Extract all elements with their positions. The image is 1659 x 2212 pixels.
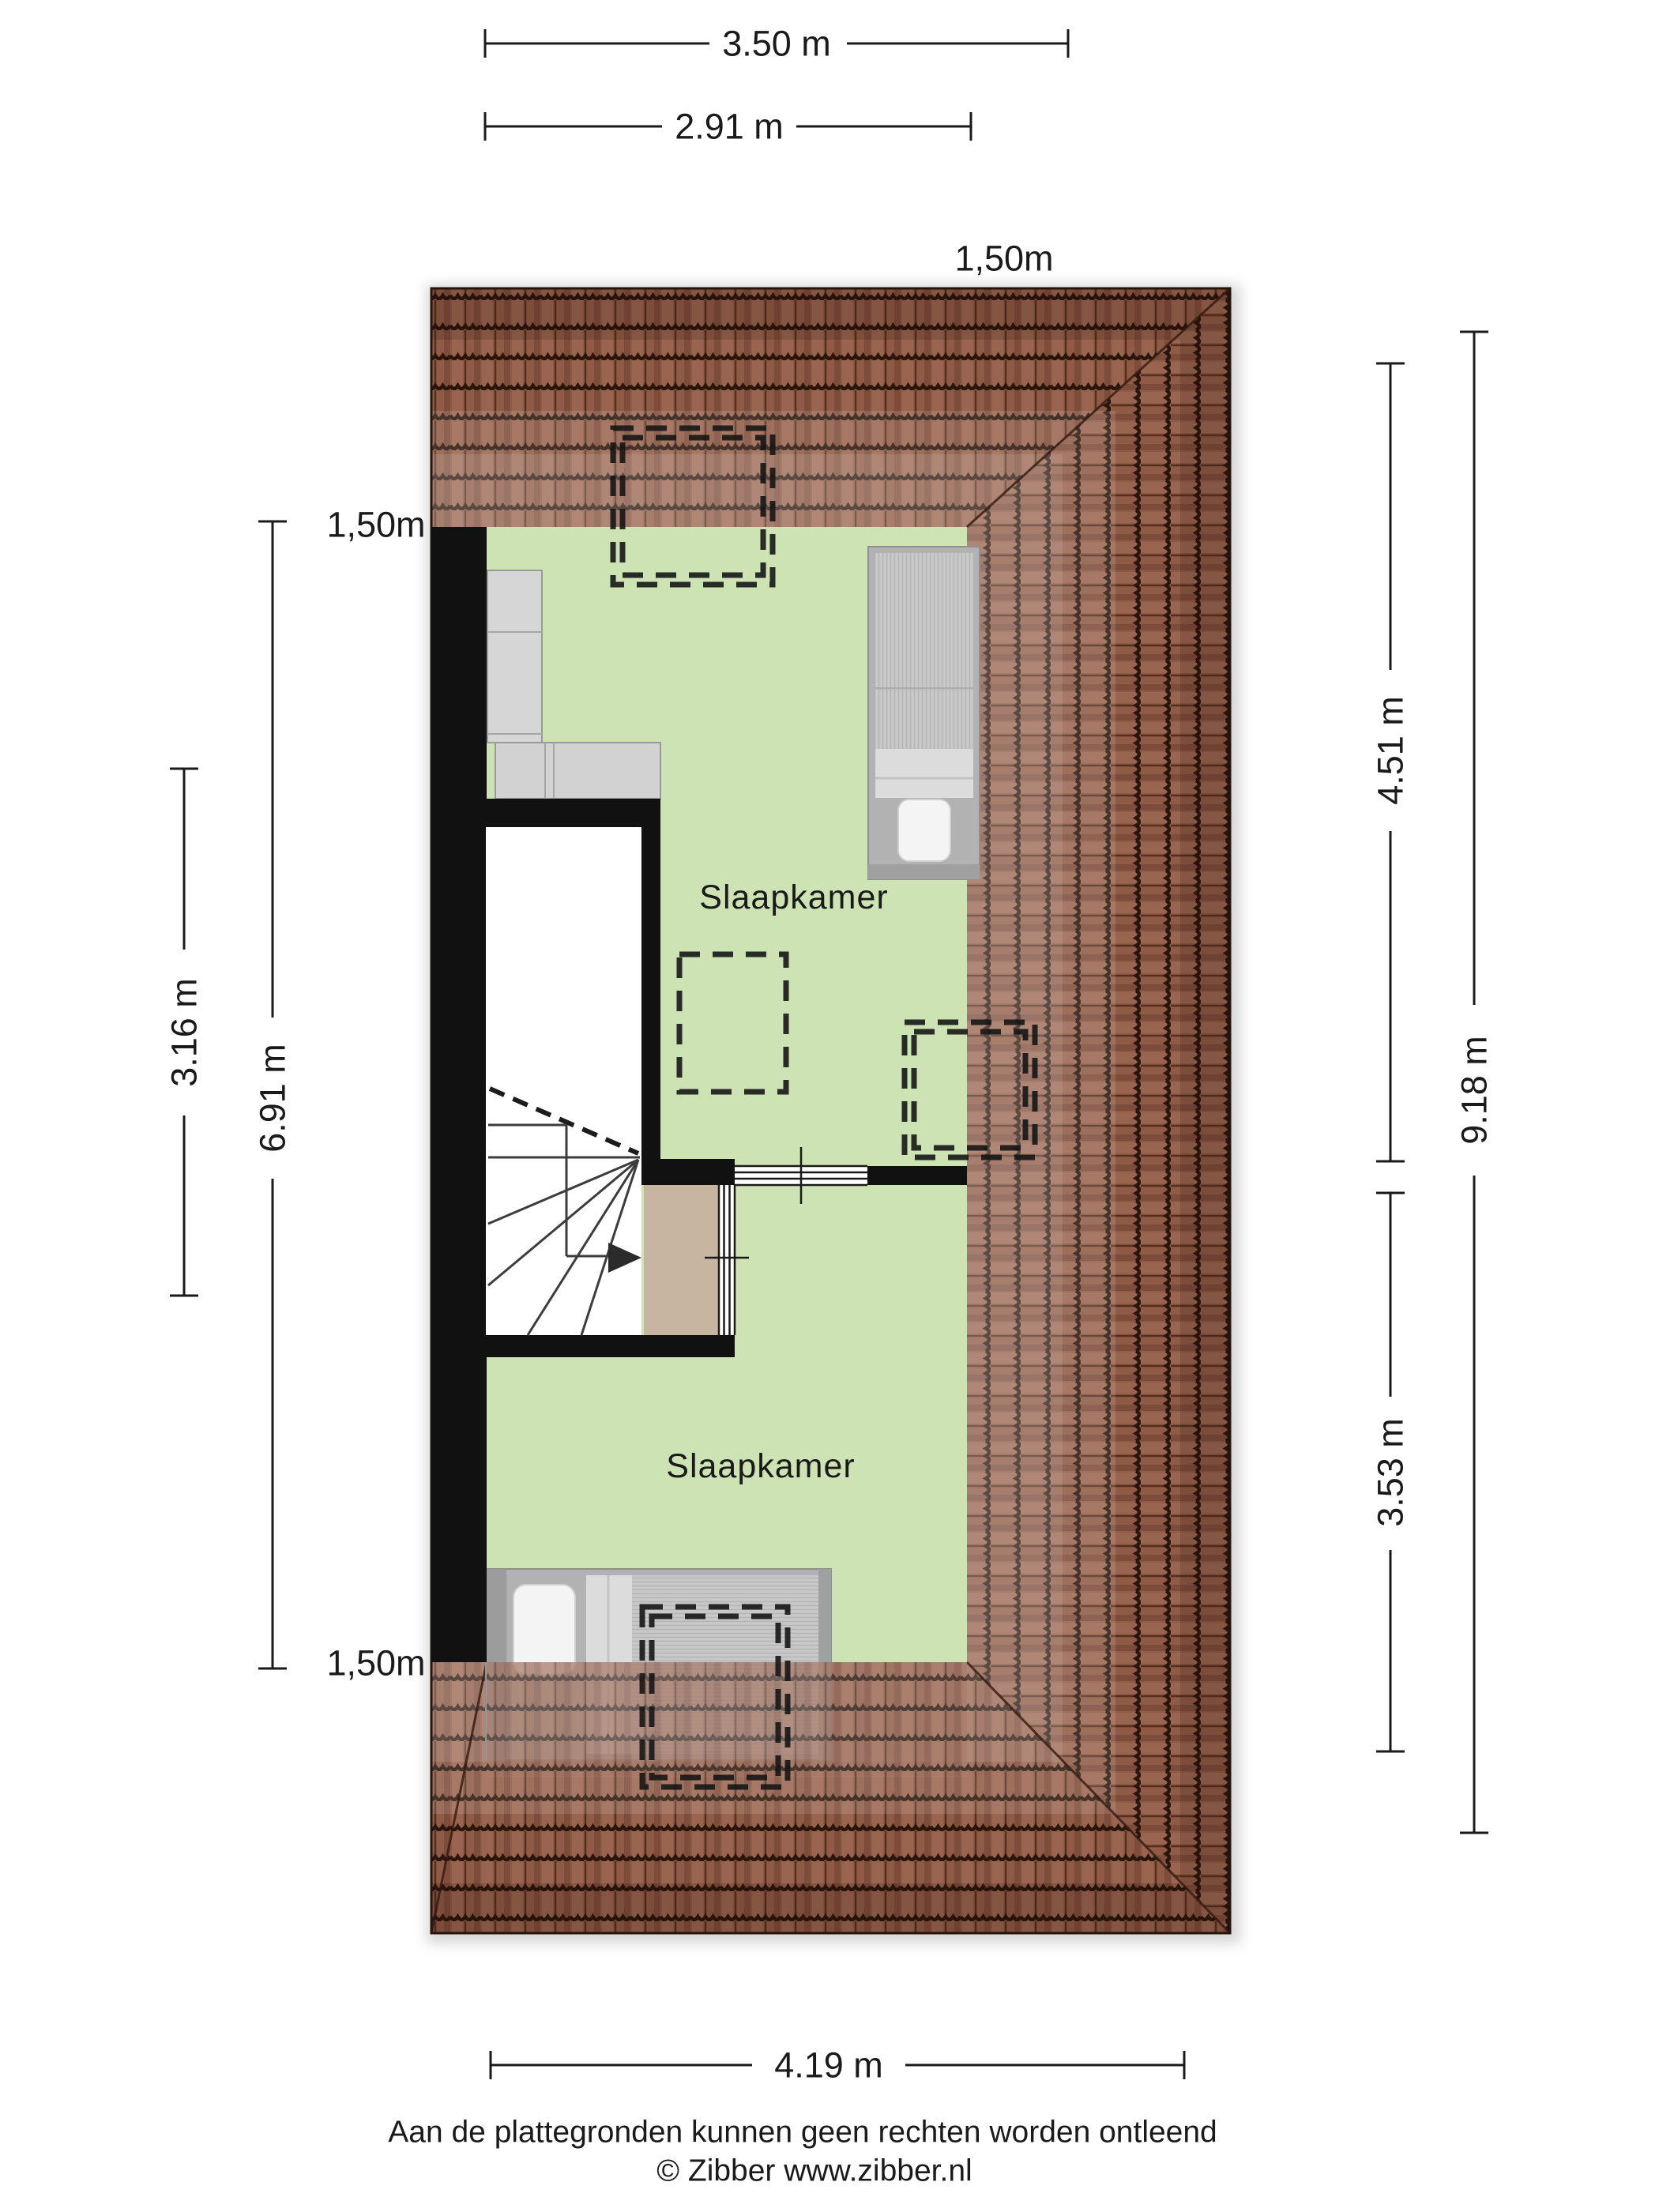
dimension-bottom: 4.19 m [491,2045,1184,2086]
dimension-top-inner: 2.91 m [485,107,971,147]
wall-landing [641,1159,735,1185]
dimension-left-total-label: 6.91 m [253,1044,293,1153]
dimension-top-inner-label: 2.91 m [675,107,784,147]
dimension-top-total-label: 3.50 m [722,24,831,64]
dimension-top-total: 3.50 m [485,24,1068,64]
height-marker-lower-left: 1,50m [326,1643,425,1683]
dimension-right-total: 9.18 m [1454,332,1495,1833]
dimension-left-total: 6.91 m [253,521,293,1668]
dimension-right-upper-label: 4.51 m [1371,696,1411,805]
wall-left [431,527,487,1662]
wall-stairwell-bottom [486,1335,735,1357]
landing [644,1185,719,1335]
wall-stairwell-right [641,799,660,1159]
dimension-right-total-label: 9.18 m [1454,1036,1495,1145]
bedroom-2-label: Slaapkamer [666,1447,855,1485]
dimension-left-inner: 3.16 m [164,769,205,1296]
dimension-right-lower-label: 3.53 m [1371,1418,1411,1527]
footer-disclaimer: Aan de plattegronden kunnen geen rechten… [388,2116,1217,2150]
height-marker-upper-left: 1,50m [326,505,425,545]
floorplan-canvas: Slaapkamer Slaapkamer 1,50m 1,50m 1,50m … [0,0,1659,2212]
dimension-right-upper: 4.51 m [1371,363,1411,1161]
dimension-right-lower: 3.53 m [1371,1193,1411,1751]
bed-1 [868,547,980,879]
footer-copyright: © Zibber www.zibber.nl [656,2154,972,2188]
floorplan-page: Slaapkamer Slaapkamer 1,50m 1,50m 1,50m … [0,0,1659,2212]
bedroom-1-label: Slaapkamer [699,878,888,916]
height-marker-top-right: 1,50m [954,239,1053,279]
dimension-left-inner-label: 3.16 m [164,978,205,1087]
wall-stairwell-top [486,799,660,827]
wall-middle-right [867,1166,967,1185]
dimension-bottom-label: 4.19 m [774,2045,883,2086]
roof-ghost-strip [487,1662,967,1777]
